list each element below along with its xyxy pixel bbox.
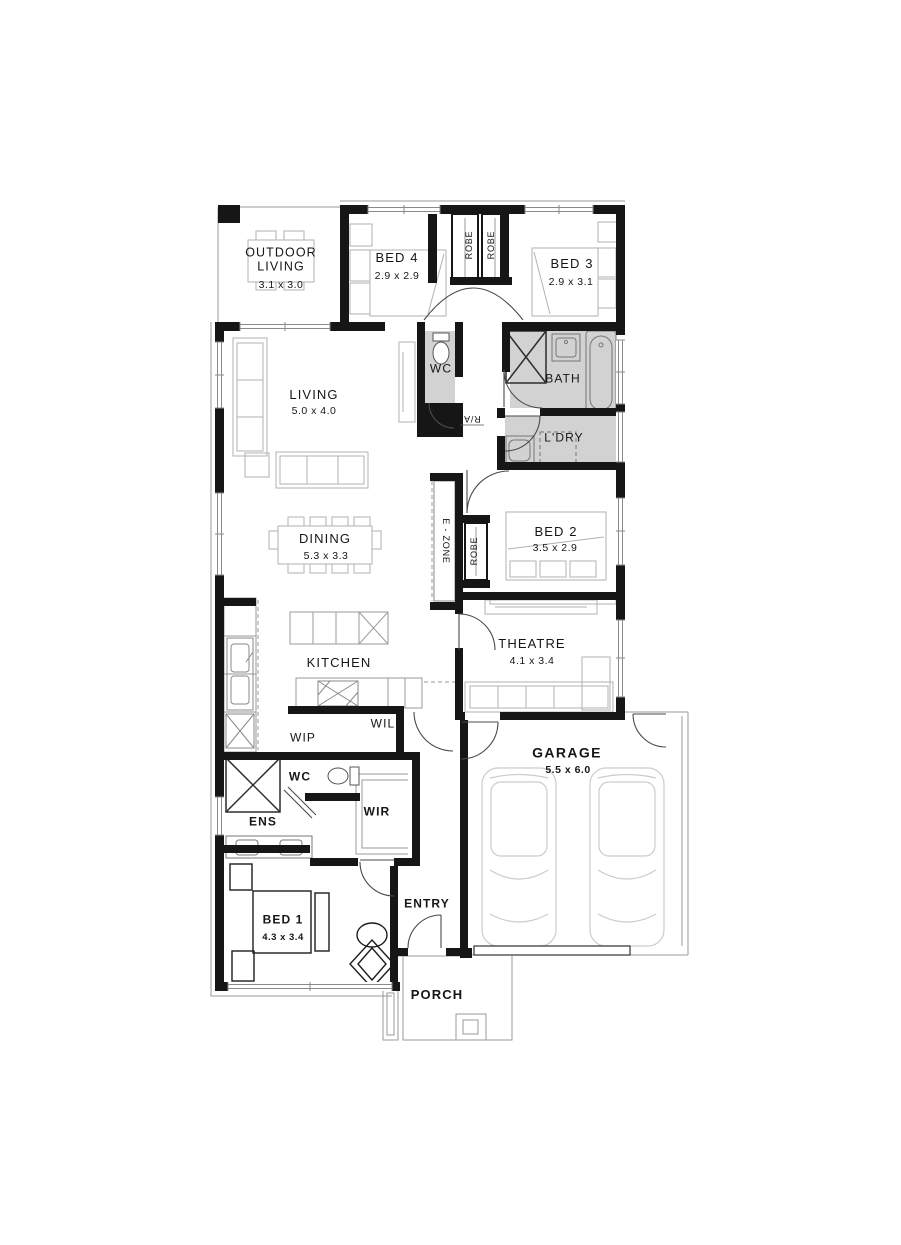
room-label-bath: BATH xyxy=(545,372,581,385)
room-dims-bed4: 2.9 x 2.9 xyxy=(375,271,420,283)
window xyxy=(240,322,330,331)
room-label-bed2: BED 2 xyxy=(534,525,577,539)
window xyxy=(215,797,224,835)
room-dims-bed1: 4.3 x 3.4 xyxy=(262,933,303,943)
window xyxy=(228,982,392,991)
furniture xyxy=(224,222,618,752)
window xyxy=(525,205,593,214)
fixture-label-robe-1: ROBE xyxy=(465,231,475,260)
fixture-label-return-air: R/A xyxy=(463,413,480,423)
floor-plan-canvas: OUTDOOR LIVING 3.1 x 3.0 BED 4 2.9 x 2.9… xyxy=(0,0,901,1245)
window xyxy=(215,493,224,575)
window xyxy=(368,205,440,214)
room-label-laundry: L'DRY xyxy=(544,431,584,444)
toilet-icon xyxy=(328,767,359,785)
window xyxy=(215,342,224,408)
room-label-bed1: BED 1 xyxy=(263,913,304,926)
car-icons xyxy=(482,768,664,946)
room-label-wc-top: WC xyxy=(430,362,452,375)
toilet-icon xyxy=(433,333,449,364)
room-dims-theatre: 4.1 x 3.4 xyxy=(510,656,555,668)
window xyxy=(616,412,625,462)
room-label-porch: PORCH xyxy=(411,988,463,1002)
room-dims-garage: 5.5 x 6.0 xyxy=(545,765,590,777)
bed1-icon xyxy=(230,864,394,988)
room-label-living: LIVING xyxy=(289,388,338,402)
room-label-ens: ENS xyxy=(249,815,277,828)
fixture-label-robe-2: ROBE xyxy=(487,231,497,260)
car-icon xyxy=(590,768,664,946)
room-label-kitchen: KITCHEN xyxy=(307,656,372,670)
window xyxy=(616,498,625,565)
room-label-wil: WIL xyxy=(371,717,396,730)
room-dims-bed3: 2.9 x 3.1 xyxy=(549,277,594,289)
room-label-outdoor-living: OUTDOOR LIVING xyxy=(235,246,327,274)
window xyxy=(616,340,625,404)
fixture-label-ezone: E - ZONE xyxy=(440,518,450,563)
room-label-wir: WIR xyxy=(364,805,391,818)
dishwasher-icon xyxy=(226,714,254,748)
room-label-theatre: THEATRE xyxy=(498,637,565,651)
car-icon xyxy=(482,768,556,946)
room-dims-living: 5.0 x 4.0 xyxy=(292,406,337,418)
tv-cabinet-icon xyxy=(399,342,415,422)
shower-icon xyxy=(226,758,280,812)
floor-plan-drawing xyxy=(0,0,901,1245)
room-label-dining: DINING xyxy=(299,532,351,546)
room-dims-bed2: 3.5 x 2.9 xyxy=(533,543,578,555)
fixture-label-robe-3: ROBE xyxy=(470,537,480,566)
room-label-wip: WIP xyxy=(290,731,316,744)
room-label-bed4: BED 4 xyxy=(375,251,418,265)
cooktop-icon xyxy=(318,681,358,706)
room-label-wc-bottom: WC xyxy=(289,770,311,783)
room-label-entry: ENTRY xyxy=(404,897,450,910)
window xyxy=(616,620,625,697)
room-label-bed3: BED 3 xyxy=(550,257,593,271)
garage-door xyxy=(474,946,630,955)
room-dims-outdoor-living: 3.1 x 3.0 xyxy=(259,280,304,292)
room-label-garage: GARAGE xyxy=(532,745,602,760)
room-dims-dining: 5.3 x 3.3 xyxy=(304,551,349,563)
